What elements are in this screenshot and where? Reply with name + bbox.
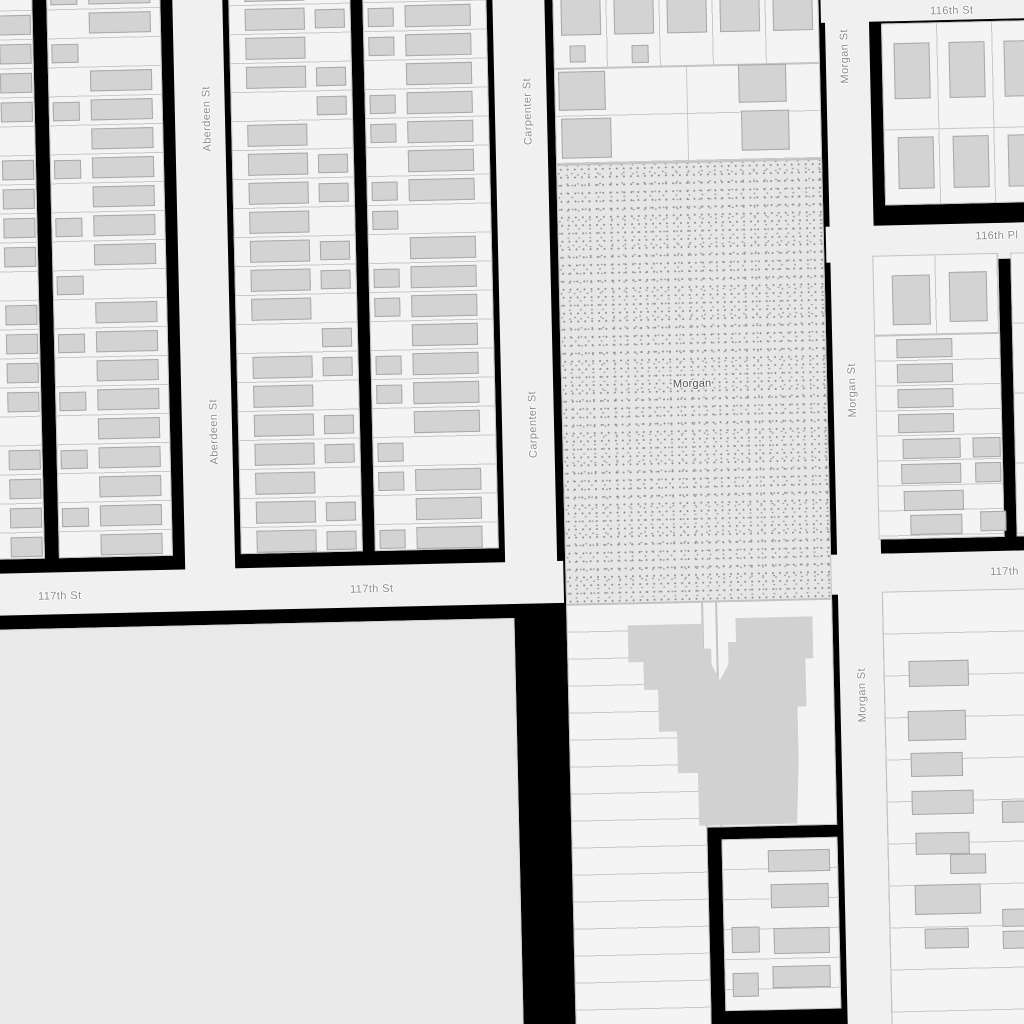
building-footprint — [256, 500, 316, 523]
building-footprint — [406, 62, 472, 85]
building-footprint — [316, 67, 346, 87]
building-footprint — [100, 504, 162, 526]
building-footprint — [92, 156, 154, 178]
building-footprint — [738, 64, 787, 103]
street-label-aberdeen-north: Aberdeen St — [200, 86, 213, 152]
building-footprint — [953, 135, 990, 188]
building-footprint — [908, 710, 967, 741]
building-footprint — [897, 363, 953, 383]
map-viewport[interactable]: Aberdeen St Aberdeen St Carpenter St Car… — [0, 0, 1024, 1024]
building-footprint — [949, 271, 988, 322]
building-footprint — [975, 462, 1001, 483]
building-footprint — [318, 154, 348, 174]
building-footprint — [55, 218, 82, 238]
building-footprint — [246, 66, 306, 89]
building-footprint — [373, 268, 399, 288]
building-footprint — [100, 533, 162, 555]
building-footprint — [411, 294, 477, 317]
building-footprint — [90, 69, 152, 91]
building-footprint — [408, 178, 474, 201]
building-footprint — [248, 153, 308, 176]
building-footprint — [414, 410, 480, 433]
building-footprint — [249, 211, 309, 234]
building-footprint — [315, 9, 345, 29]
street — [819, 0, 1024, 23]
building-footprint — [897, 388, 953, 408]
building-footprint — [405, 33, 471, 56]
building-footprint — [416, 526, 482, 549]
building-footprint — [1, 102, 33, 123]
building-footprint — [95, 301, 157, 323]
building-footprint — [3, 218, 35, 239]
building-footprint — [892, 274, 931, 325]
building-footprint — [98, 446, 160, 468]
street-label-carpenter-north: Carpenter St — [521, 78, 535, 145]
building-footprint — [915, 832, 969, 855]
building-footprint — [0, 73, 32, 94]
open-field-area — [0, 618, 526, 1024]
building-footprint — [2, 160, 34, 181]
building-footprint — [741, 110, 790, 151]
building-footprint — [248, 182, 308, 205]
building-footprint — [6, 334, 38, 355]
building-footprint — [377, 442, 403, 462]
building-footprint — [665, 0, 707, 33]
building-footprint — [372, 211, 398, 231]
map-void — [711, 1009, 843, 1024]
building-footprint — [0, 44, 32, 65]
city-block — [1010, 250, 1024, 536]
building-footprint — [972, 437, 1000, 458]
building-footprint — [375, 355, 401, 375]
building-footprint — [320, 241, 350, 261]
building-footprint — [925, 928, 969, 949]
building-footprint — [256, 529, 316, 552]
building-footprint — [612, 0, 654, 35]
building-footprint — [893, 42, 930, 99]
building-footprint — [93, 185, 155, 207]
street-label-117th-east: 117th — [990, 566, 1019, 579]
building-footprint — [253, 384, 313, 407]
building-footprint — [250, 269, 310, 292]
street-label-morgan-north: Morgan St — [838, 29, 851, 84]
building-footprint — [911, 752, 964, 777]
building-footprint — [60, 450, 87, 470]
street-label-morgan-mid: Morgan St — [846, 363, 859, 418]
building-footprint — [406, 91, 472, 114]
building-footprint — [379, 529, 405, 549]
building-footprint — [94, 243, 156, 265]
building-footprint — [6, 363, 38, 384]
building-footprint — [10, 537, 42, 558]
building-footprint — [97, 388, 159, 410]
building-footprint — [58, 334, 85, 354]
building-footprint — [898, 413, 954, 433]
building-footprint — [255, 471, 315, 494]
building-footprint — [252, 355, 312, 378]
building-footprint — [733, 973, 760, 998]
building-footprint — [911, 790, 974, 815]
building-footprint — [902, 438, 960, 459]
building-footprint — [915, 883, 982, 914]
building-footprint — [901, 463, 961, 484]
street-label-116th-st: 116th St — [930, 4, 974, 17]
building-footprint — [731, 926, 760, 953]
street-label-aberdeen-south: Aberdeen St — [207, 399, 220, 465]
building-footprint — [1008, 134, 1024, 187]
building-footprint — [326, 502, 356, 522]
building-footprint — [1003, 40, 1024, 97]
building-footprint — [96, 359, 158, 381]
building-footprint — [247, 124, 307, 147]
building-footprint — [378, 471, 404, 491]
building-footprint — [416, 497, 482, 520]
building-footprint — [415, 468, 481, 491]
building-footprint — [91, 127, 153, 149]
building-footprint — [558, 71, 606, 111]
building-footprint — [898, 136, 935, 189]
street-label-117th-mid: 117th St — [350, 583, 394, 596]
building-footprint — [771, 0, 813, 31]
building-footprint — [8, 450, 40, 471]
building-footprint — [322, 328, 352, 348]
building-footprint — [368, 8, 394, 28]
building-footprint — [774, 927, 831, 954]
building-footprint — [910, 514, 962, 535]
building-footprint — [1002, 800, 1024, 823]
building-footprint — [408, 149, 474, 172]
building-footprint — [317, 96, 347, 116]
building-footprint — [254, 442, 314, 465]
building-footprint — [96, 330, 158, 352]
building-footprint — [324, 444, 354, 464]
building-footprint — [560, 0, 602, 36]
building-footprint — [412, 352, 478, 375]
building-footprint — [371, 182, 397, 202]
building-footprint — [98, 417, 160, 439]
building-footprint — [368, 37, 394, 57]
street-label-morgan-south: Morgan St — [856, 668, 869, 723]
building-footprint — [908, 660, 969, 687]
building-footprint — [3, 189, 35, 210]
building-footprint — [9, 479, 41, 500]
building-footprint — [0, 15, 31, 36]
building-footprint — [370, 95, 396, 115]
building-footprint — [250, 240, 310, 263]
building-footprint — [57, 276, 84, 296]
building-footprint — [322, 357, 352, 377]
building-footprint — [948, 41, 985, 98]
building-footprint — [50, 0, 77, 5]
building-footprint — [54, 160, 81, 180]
street-label-117th-west: 117th St — [38, 590, 82, 603]
building-footprint — [326, 531, 356, 551]
building-footprint — [91, 98, 153, 120]
building-footprint — [53, 102, 80, 122]
building-footprint — [896, 338, 952, 358]
building-footprint — [99, 475, 161, 497]
building-footprint — [93, 214, 155, 236]
building-footprint — [59, 392, 86, 412]
building-footprint — [245, 8, 305, 31]
building-footprint — [324, 415, 354, 435]
map-canvas: Aberdeen St Aberdeen St Carpenter St Car… — [0, 0, 1024, 1024]
area-label-morgan: Morgan — [673, 377, 712, 390]
building-footprint — [62, 508, 89, 528]
building-footprint — [318, 183, 348, 203]
building-footprint — [4, 247, 36, 268]
building-footprint — [1002, 908, 1024, 927]
building-footprint — [413, 381, 479, 404]
building-footprint — [51, 44, 78, 64]
building-footprint — [412, 323, 478, 346]
building-footprint — [5, 305, 37, 326]
building-footprint — [980, 511, 1006, 532]
building-footprint — [7, 392, 39, 413]
building-footprint — [561, 118, 612, 159]
building-footprint — [771, 883, 830, 908]
street — [0, 561, 564, 618]
building-footprint — [569, 45, 585, 62]
building-footprint — [10, 508, 42, 529]
building-footprint — [410, 236, 476, 259]
building-footprint — [320, 270, 350, 290]
street-label-carpenter-south: Carpenter St — [526, 391, 540, 458]
building-footprint — [904, 490, 964, 511]
building-footprint — [1003, 930, 1024, 949]
building-footprint — [718, 0, 760, 32]
building-footprint — [251, 298, 311, 321]
building-footprint — [254, 413, 314, 436]
building-footprint — [89, 11, 151, 33]
building-footprint — [245, 37, 305, 60]
building-footprint — [410, 265, 476, 288]
building-footprint — [376, 384, 402, 404]
building-footprint — [768, 849, 830, 872]
building-footprint — [370, 124, 396, 144]
building-footprint — [404, 4, 470, 27]
street-label-116th-pl: 116th Pl — [975, 229, 1018, 242]
building-footprint — [374, 297, 400, 317]
building-footprint — [407, 120, 473, 143]
building-footprint — [631, 45, 648, 63]
building-footprint — [772, 965, 830, 988]
building-footprint — [950, 853, 986, 874]
